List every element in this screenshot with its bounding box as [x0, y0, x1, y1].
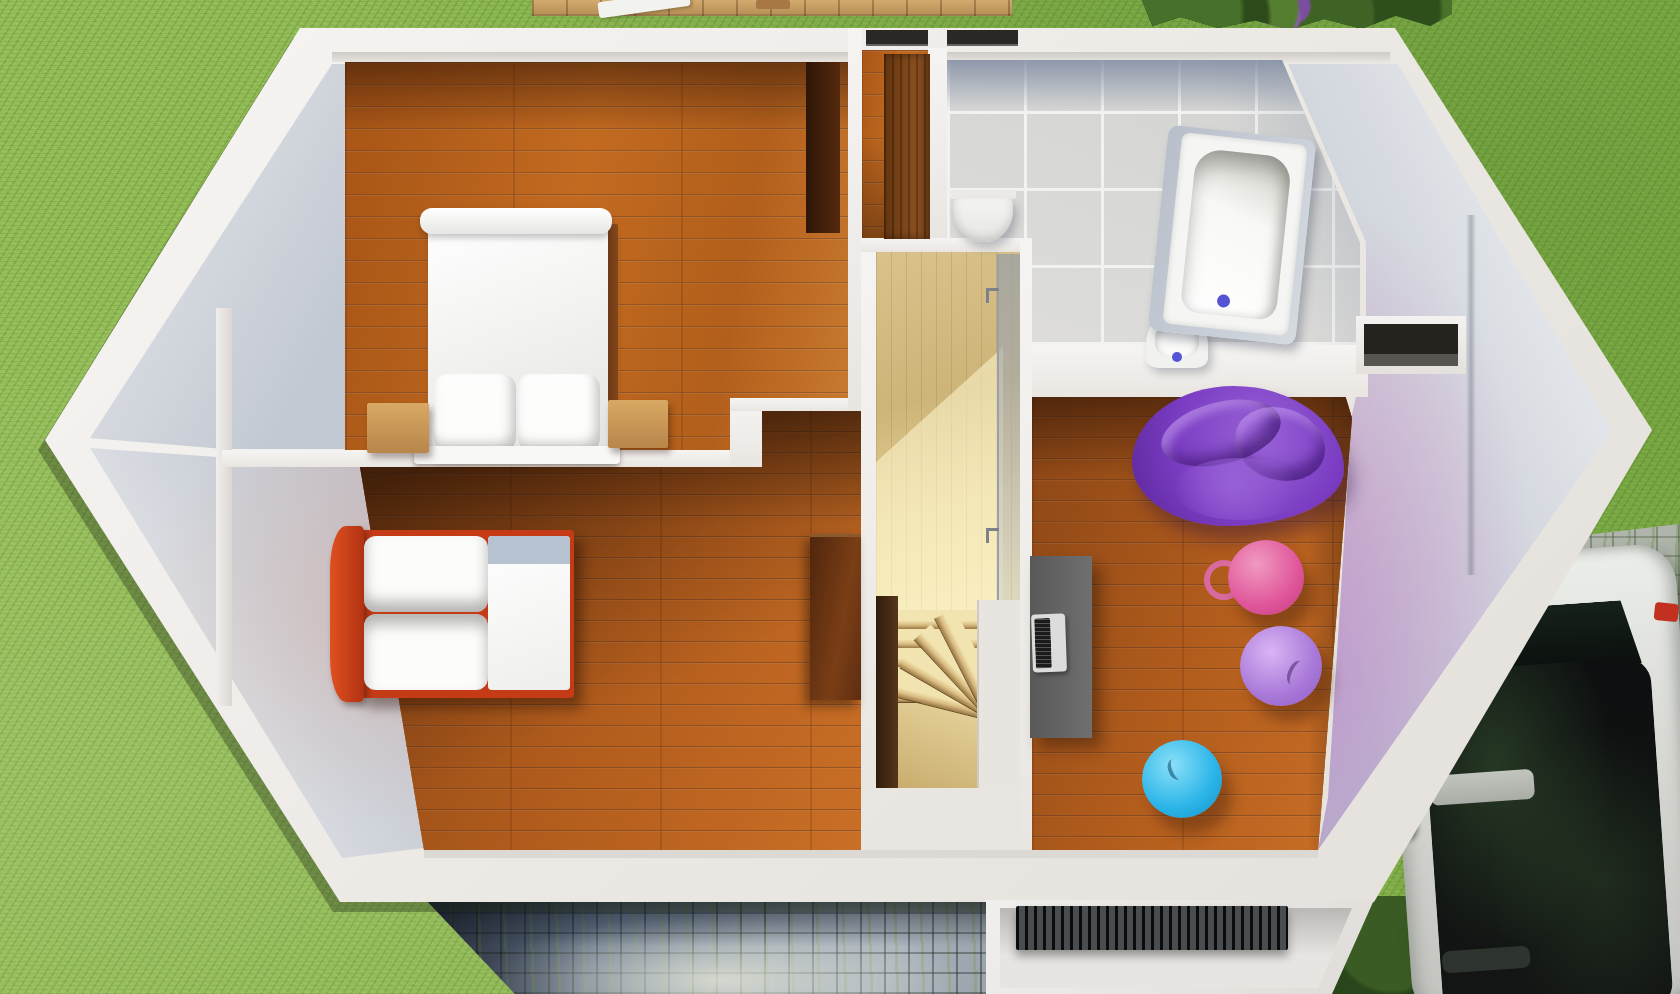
hedge — [1140, 0, 1452, 30]
single-bed-duvet-fold — [488, 536, 570, 564]
window-slot-right — [947, 30, 1018, 46]
wall-bedroom-right — [848, 28, 862, 411]
stairwell — [876, 252, 1020, 788]
bottom-wall-inner-edge — [424, 850, 1318, 858]
railing-bracket-2 — [986, 528, 999, 543]
single-bed-pillow-bottom — [364, 614, 488, 690]
bathtub-basin — [1180, 148, 1293, 321]
bed-pillow-left — [434, 374, 516, 452]
double-bedroom-wall-shadow — [345, 62, 850, 132]
window-slot-left — [866, 30, 928, 46]
gym-ball-pink — [1228, 540, 1304, 615]
deck-chair — [756, 0, 790, 9]
single-bed-pillow-top — [364, 536, 488, 612]
stair-void-dark — [876, 596, 898, 788]
floor-plan-scene — [0, 0, 1680, 994]
bed-pillow-right — [518, 374, 600, 452]
laptop-keyboard — [1034, 618, 1052, 669]
beanbag-seat — [1174, 458, 1306, 520]
toilet-drain-dot — [1172, 352, 1182, 362]
bed-duvet-roll — [420, 208, 612, 234]
closet-cabinet — [884, 54, 930, 239]
wall-niche-recess — [1364, 324, 1458, 366]
car-taillight — [1654, 602, 1680, 622]
beanbag-sofa — [1132, 386, 1344, 526]
gym-ball-lavender — [1240, 626, 1322, 706]
stair-railing-glass — [997, 254, 1022, 612]
nightstand-right — [608, 400, 668, 448]
railing-bracket — [986, 288, 999, 303]
wall-hallway-top — [730, 398, 861, 411]
single-bed-headboard — [330, 526, 364, 702]
bed-footboard — [414, 446, 620, 464]
bathtub — [1148, 125, 1317, 345]
wardrobe-single-bedroom — [810, 534, 861, 700]
porch-grate — [1016, 906, 1288, 950]
laptop — [1031, 613, 1067, 672]
wall-stairwell-top — [861, 238, 1032, 252]
wardrobe-double-bedroom — [806, 62, 840, 233]
single-bed — [330, 524, 578, 704]
wall-closet-bathroom — [928, 48, 947, 240]
roof-slope-crease — [1466, 215, 1476, 575]
double-bed — [420, 208, 616, 464]
wall-stairwell-right — [1020, 240, 1032, 850]
gable-ridge-wall — [216, 308, 232, 706]
gym-ball-blue — [1142, 740, 1222, 818]
stair-lower-side-wall — [977, 600, 1022, 788]
wall-stairwell-left — [861, 252, 876, 790]
patio-shadow — [428, 902, 990, 994]
nightstand-left — [367, 403, 429, 453]
